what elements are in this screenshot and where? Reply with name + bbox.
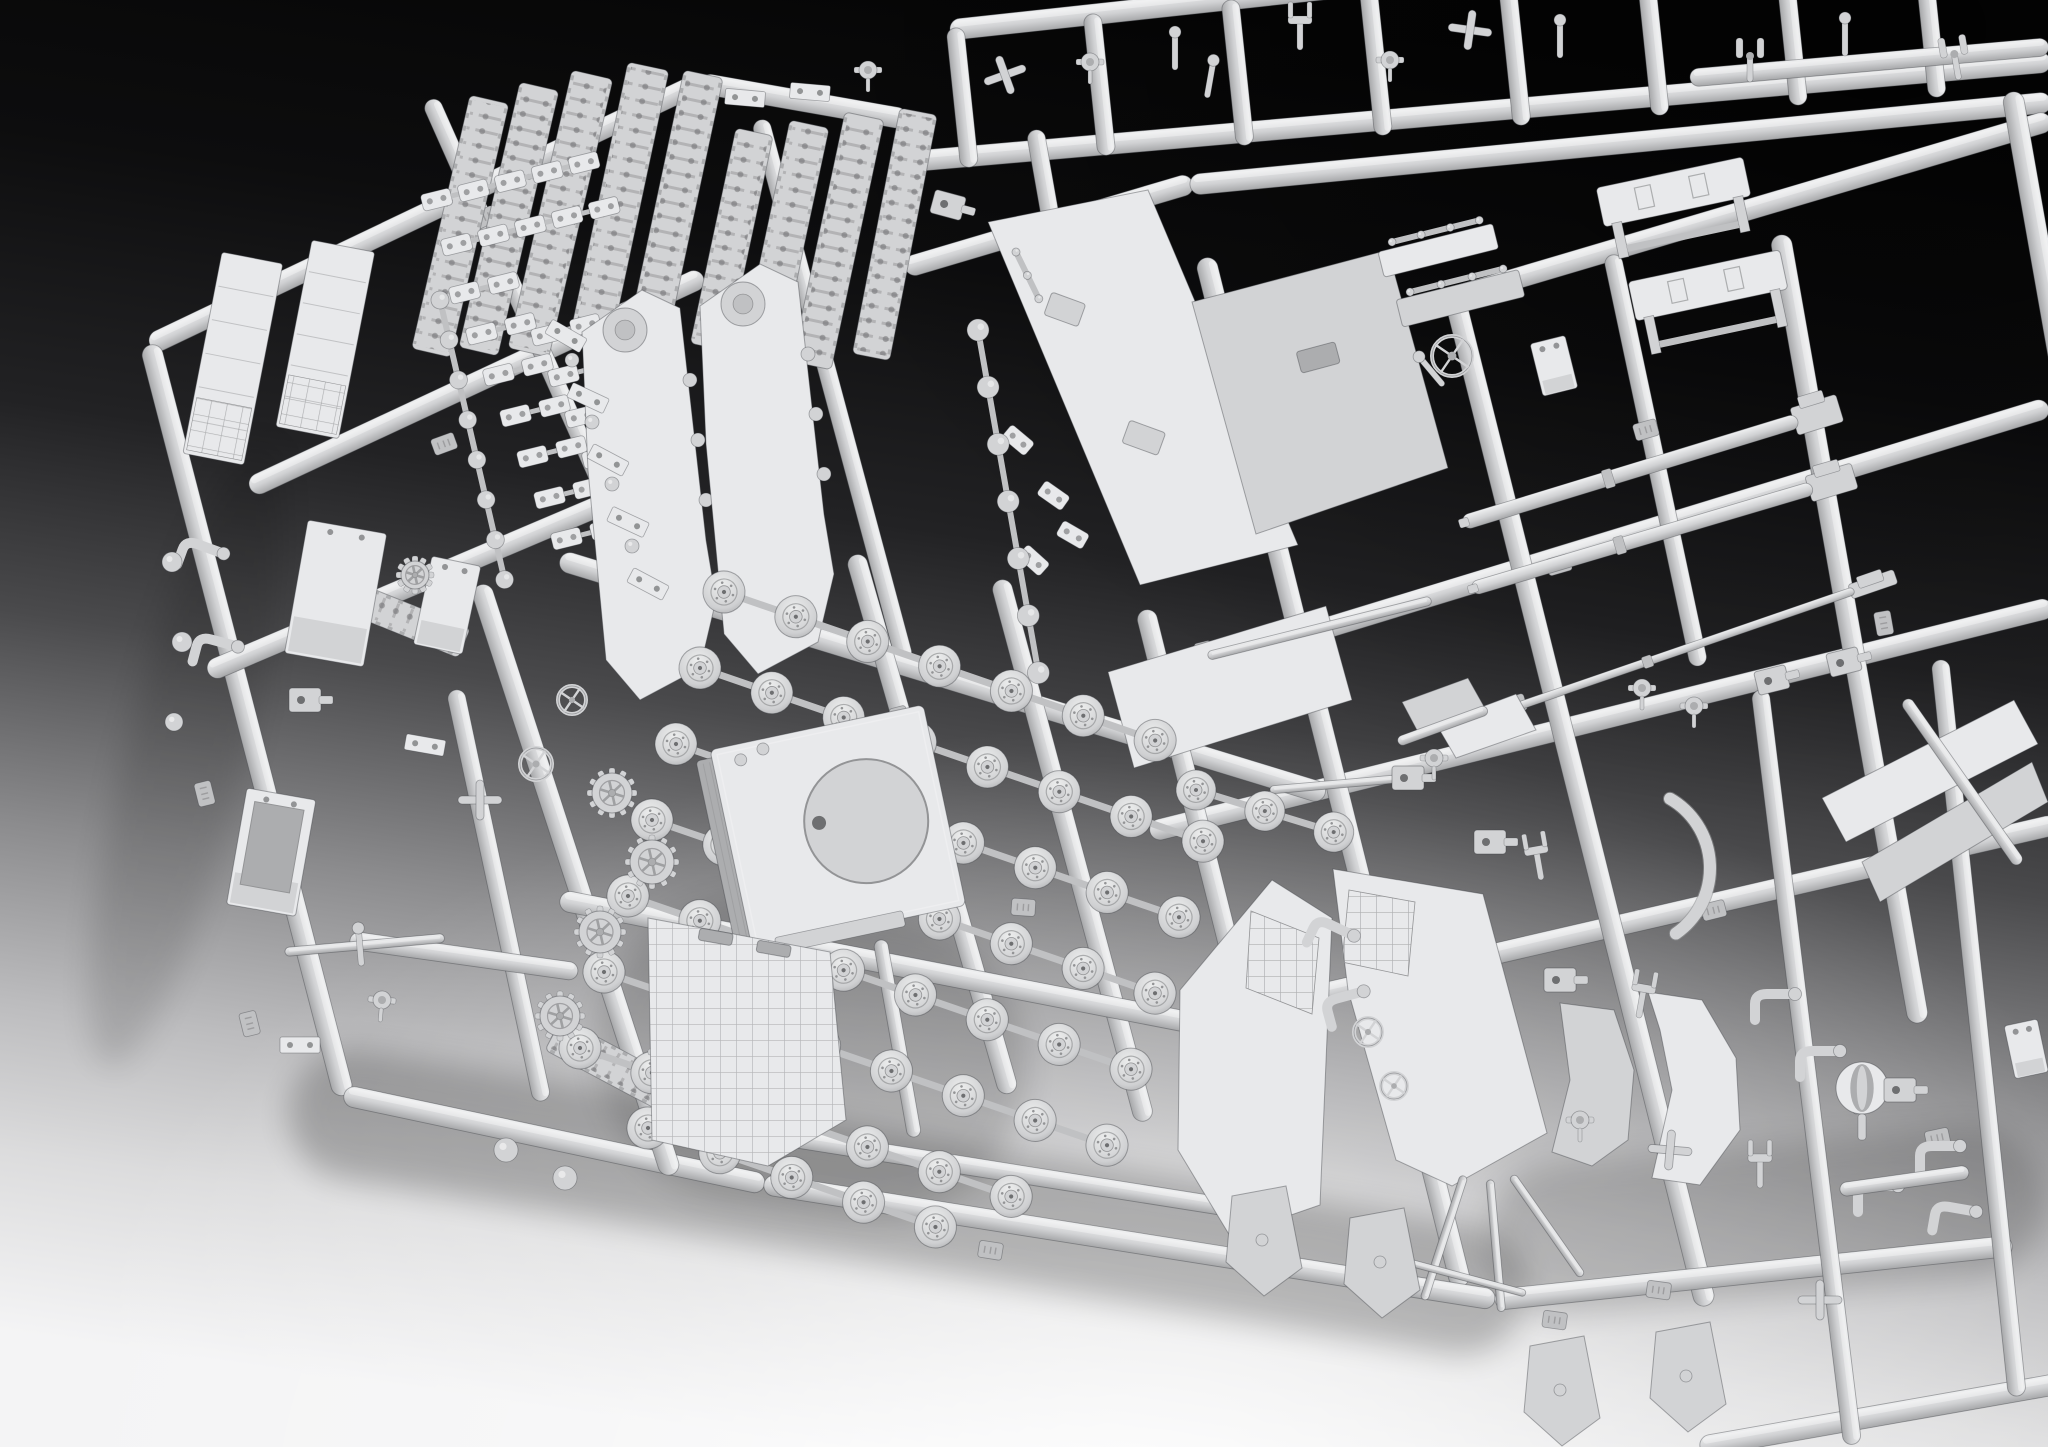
part-number-tag xyxy=(1873,610,1894,637)
part-number-tag xyxy=(1646,1280,1672,1300)
sprue-knob xyxy=(165,713,183,731)
part-number-tag xyxy=(1542,1310,1568,1330)
small-fitting xyxy=(280,1037,320,1053)
small-fitting xyxy=(724,88,765,107)
small-fitting xyxy=(789,82,830,101)
sprue-knob xyxy=(162,552,182,572)
sprue-knob xyxy=(565,353,579,367)
sprue-photo-canvas xyxy=(0,0,2048,1447)
engine-deck-plate xyxy=(648,918,846,1166)
sprue-knob xyxy=(494,1138,518,1162)
photo-model-kit-sprues xyxy=(0,0,2048,1447)
sprue-knob xyxy=(625,539,639,553)
sprue-knob xyxy=(605,477,619,491)
sprue-knob xyxy=(172,632,192,652)
part-number-tag xyxy=(977,1240,1003,1261)
sprue-knob xyxy=(553,1166,577,1190)
part-number-tag xyxy=(1011,898,1036,917)
sprue-knob xyxy=(585,415,599,429)
